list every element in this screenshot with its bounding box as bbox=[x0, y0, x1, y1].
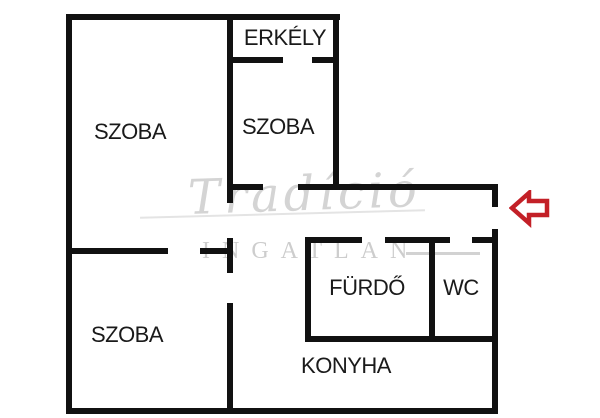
floorplan: Tradíció INGATLAN ERKÉLYSZOBASZOBASZOBAF… bbox=[0, 0, 600, 418]
entrance-arrow-layer bbox=[0, 0, 600, 418]
entrance-arrow-icon bbox=[509, 190, 551, 228]
entrance-arrow-shape bbox=[512, 193, 547, 223]
